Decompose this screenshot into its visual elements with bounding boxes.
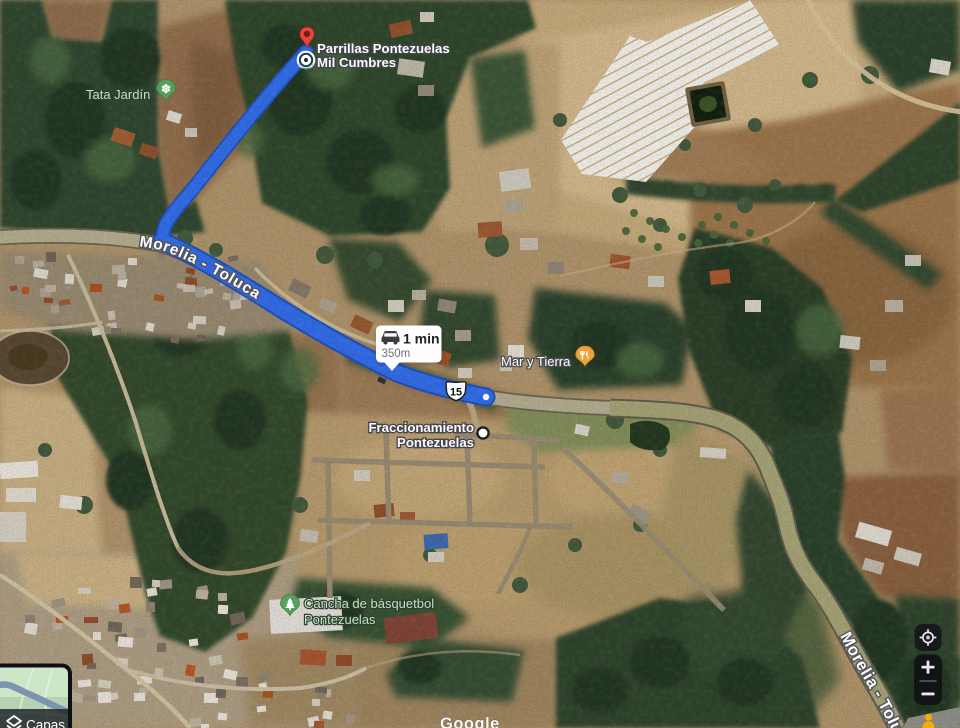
svg-text:Parrillas Pontezuelas: Parrillas Pontezuelas (317, 41, 450, 56)
svg-text:Cancha de básquetbol: Cancha de básquetbol (304, 596, 434, 611)
svg-text:Mar y Tierra: Mar y Tierra (501, 354, 571, 369)
svg-text:1 min: 1 min (403, 331, 440, 347)
svg-text:Fraccionamiento: Fraccionamiento (368, 420, 474, 435)
svg-text:Pontezuelas: Pontezuelas (397, 435, 474, 450)
svg-text:Google: Google (440, 715, 500, 728)
svg-text:15: 15 (450, 386, 462, 398)
svg-text:Capas: Capas (26, 718, 65, 728)
svg-text:350m: 350m (382, 348, 411, 360)
svg-text:Pontezuelas: Pontezuelas (304, 612, 376, 627)
svg-text:Tata Jardín: Tata Jardín (86, 87, 150, 102)
svg-text:Mil Cumbres: Mil Cumbres (317, 55, 396, 70)
